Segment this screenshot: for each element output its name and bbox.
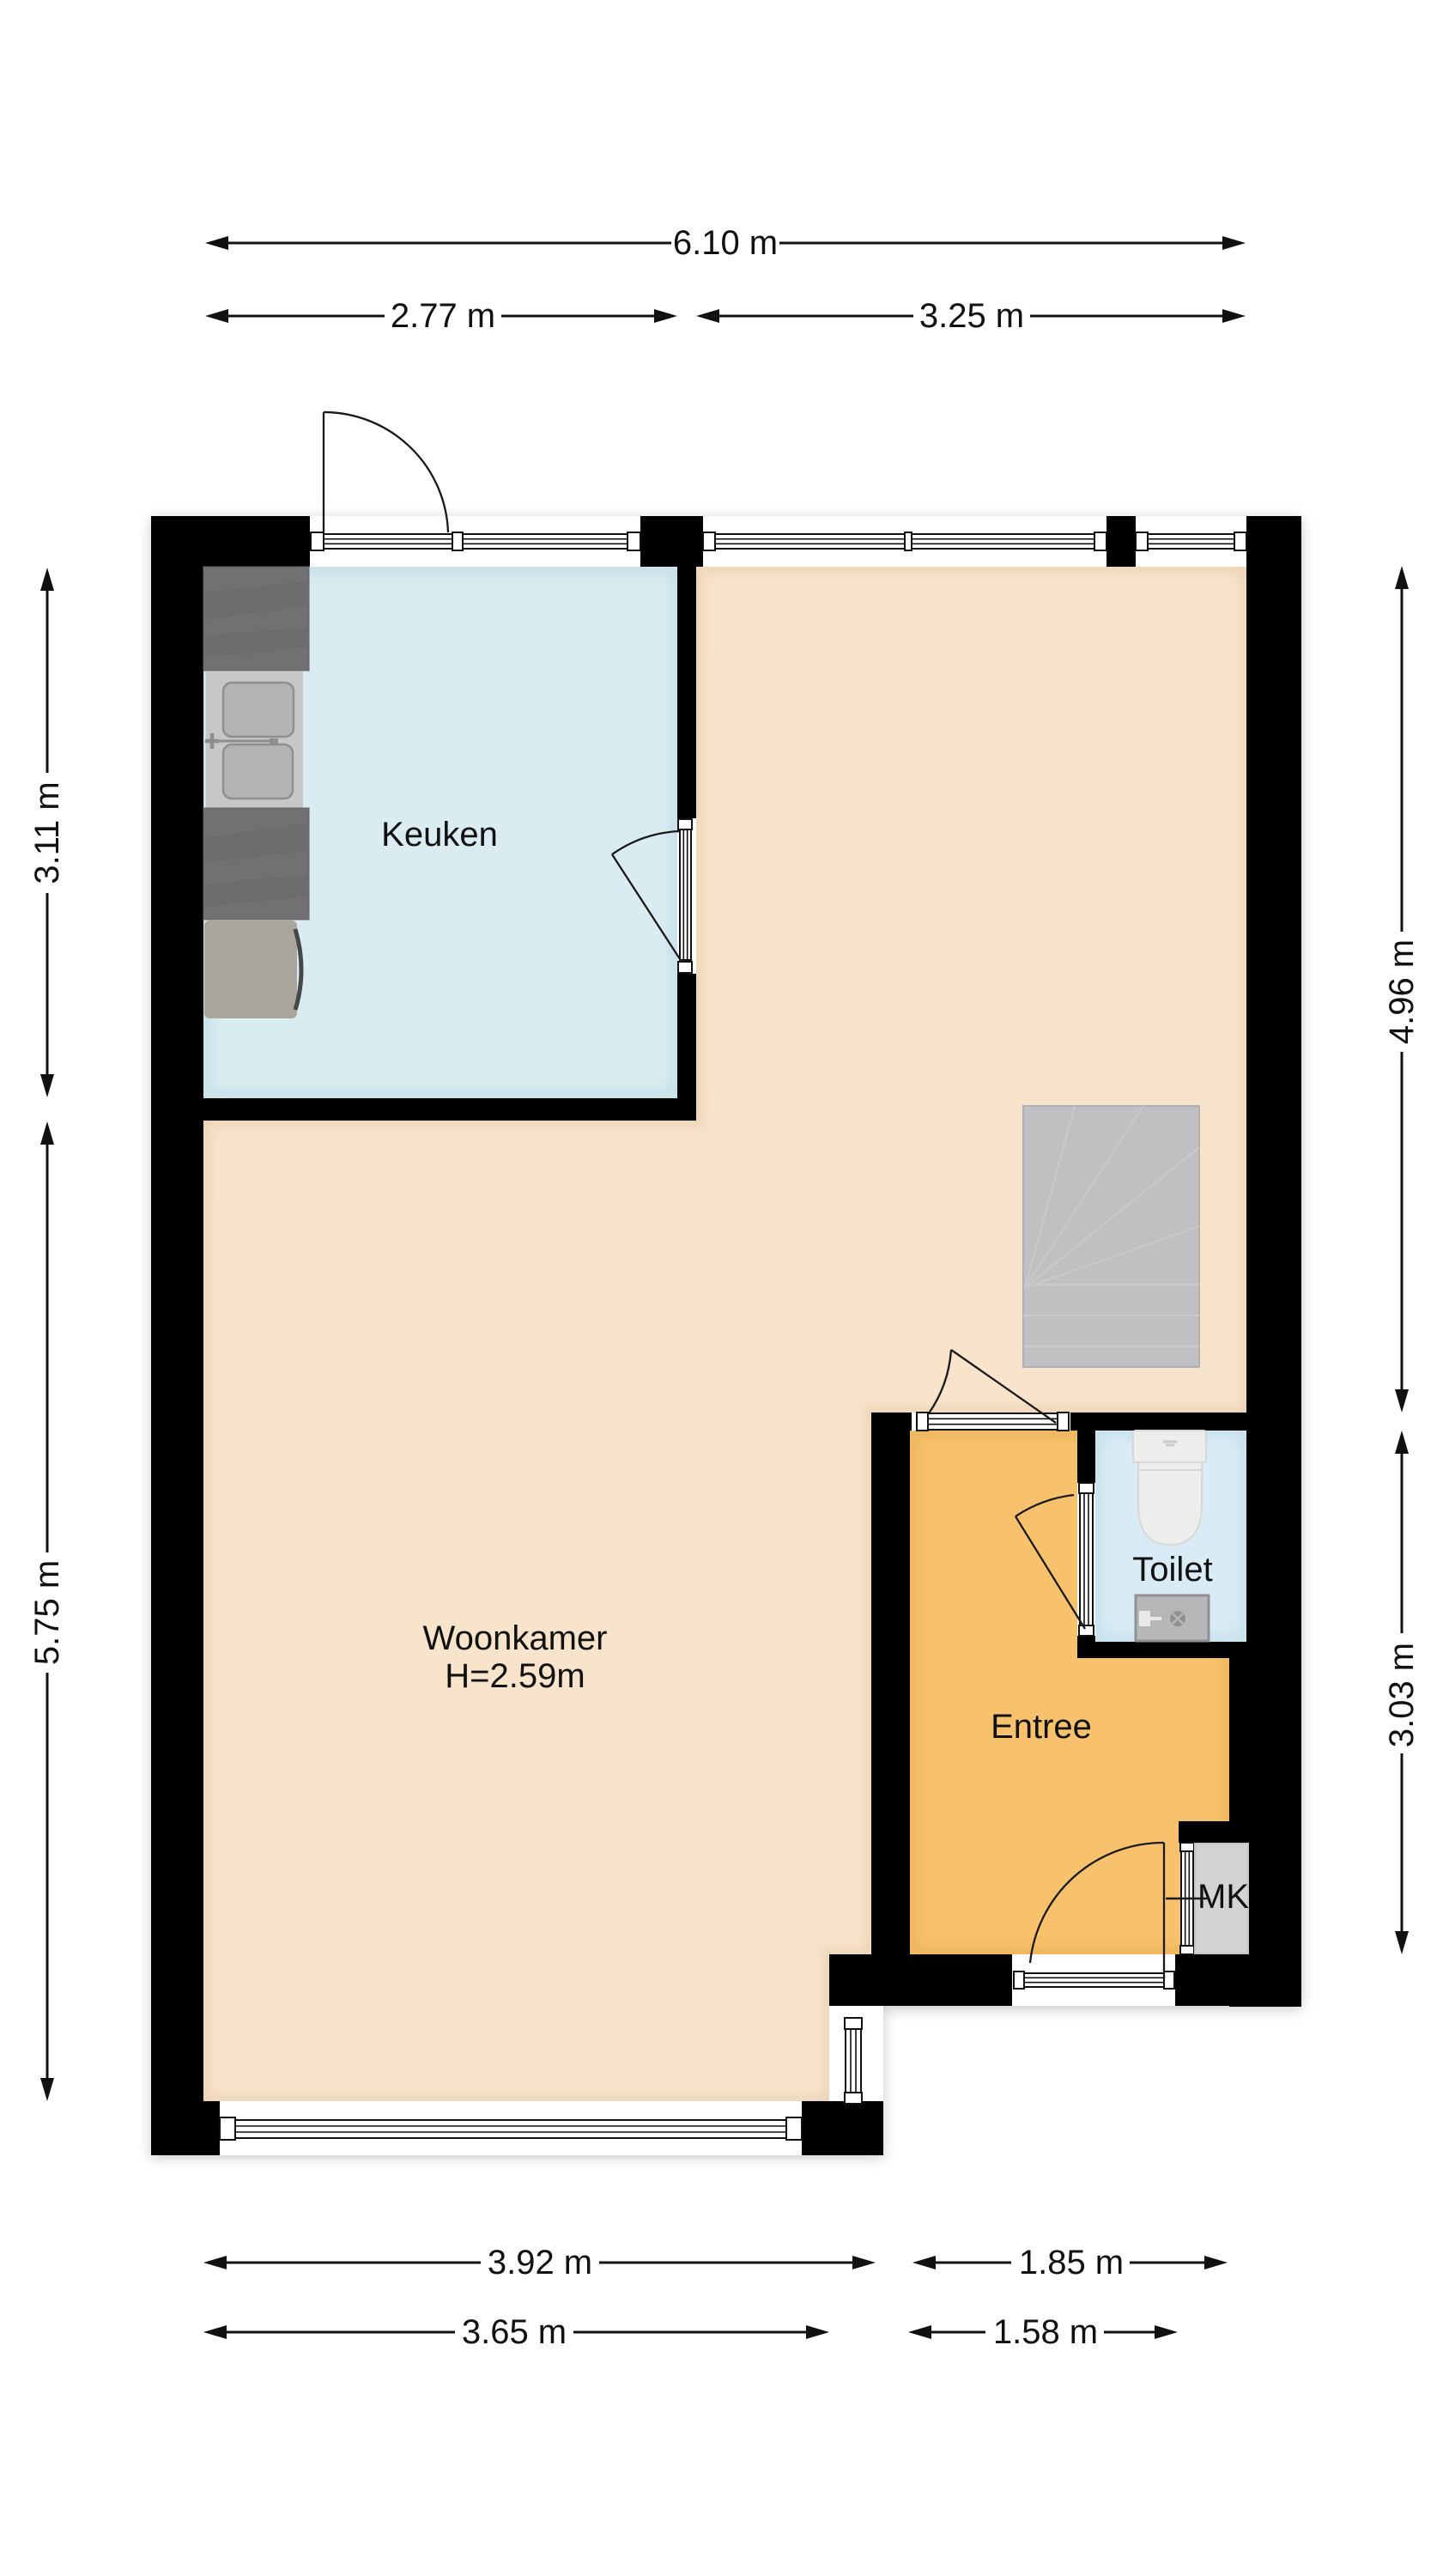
svg-text:Entree: Entree	[991, 1708, 1092, 1746]
svg-text:3.25 m: 3.25 m	[919, 297, 1024, 335]
svg-text:Keuken: Keuken	[381, 816, 498, 854]
svg-text:4.96 m: 4.96 m	[1383, 939, 1421, 1044]
svg-text:3.11 m: 3.11 m	[28, 781, 66, 884]
svg-text:1.58 m: 1.58 m	[993, 2313, 1098, 2351]
svg-text:3.92 m: 3.92 m	[488, 2244, 592, 2281]
svg-text:1.85 m: 1.85 m	[1019, 2244, 1124, 2281]
svg-text:5.75 m: 5.75 m	[28, 1560, 66, 1665]
svg-text:6.10 m: 6.10 m	[673, 224, 778, 262]
svg-text:H=2.59m: H=2.59m	[445, 1657, 585, 1695]
svg-text:Woonkamer: Woonkamer	[423, 1619, 608, 1657]
svg-text:3.03 m: 3.03 m	[1383, 1643, 1421, 1747]
svg-text:3.65 m: 3.65 m	[462, 2313, 567, 2351]
svg-text:MK: MK	[1197, 1878, 1249, 1916]
svg-text:Toilet: Toilet	[1132, 1551, 1212, 1589]
svg-text:2.77 m: 2.77 m	[391, 297, 495, 335]
